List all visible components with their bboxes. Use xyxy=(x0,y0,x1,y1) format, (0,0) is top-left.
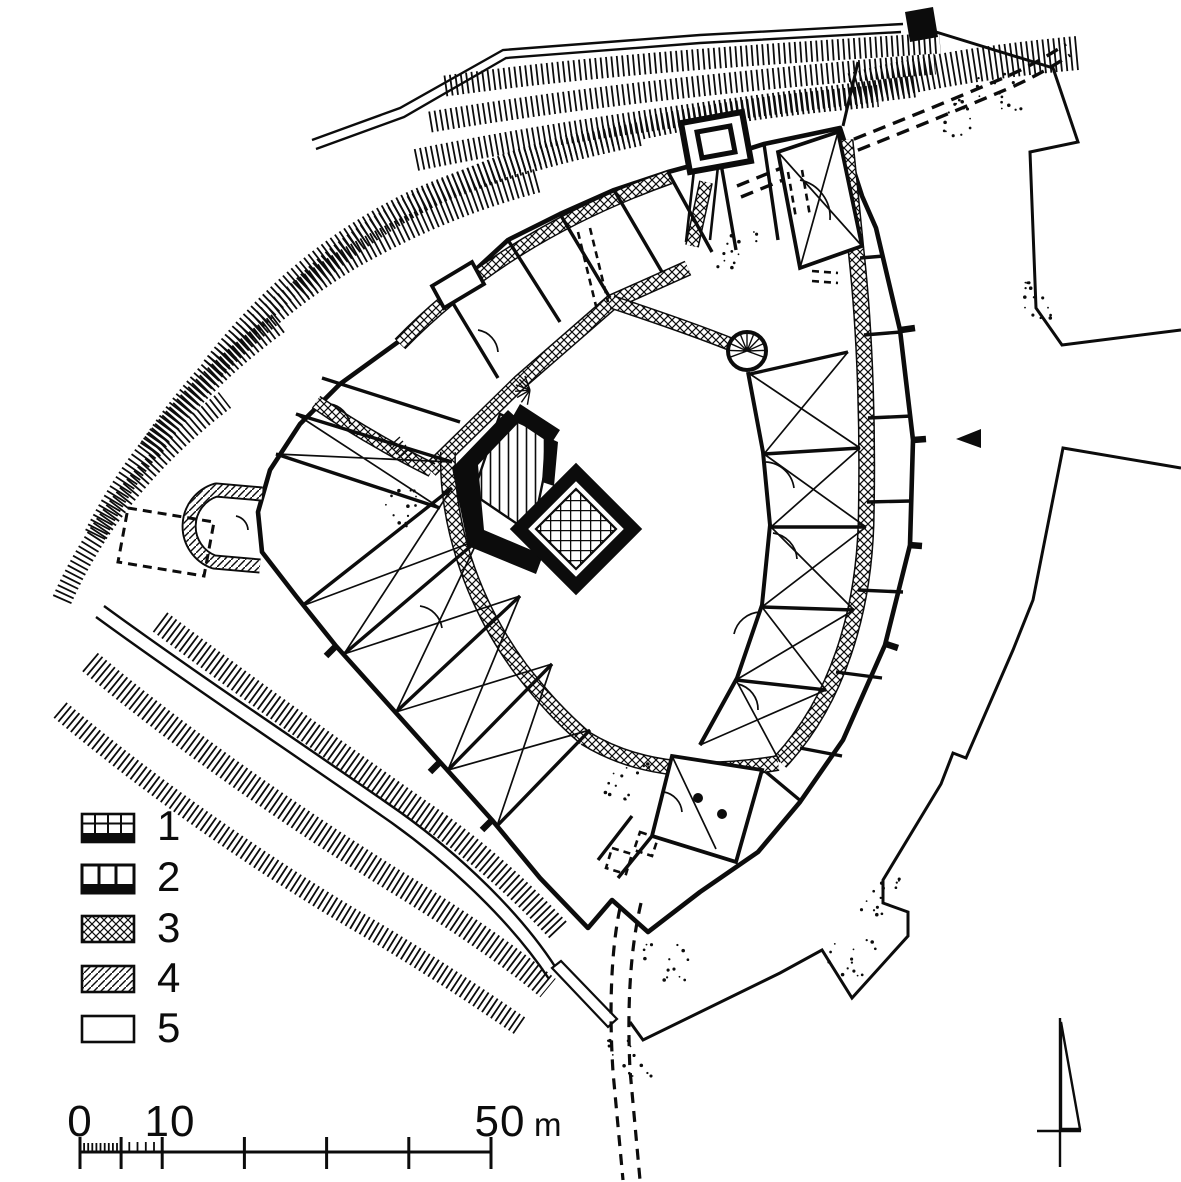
speckle-dot xyxy=(608,793,612,797)
entrance-triangle-icon xyxy=(956,429,981,448)
scale-bar: 0 10 50 m xyxy=(67,1097,561,1169)
roads xyxy=(96,24,1070,1180)
speckle-dot xyxy=(627,794,630,797)
speckle-dot xyxy=(622,1064,626,1068)
scale-label-50: 50 xyxy=(475,1097,526,1146)
speckle-dot xyxy=(628,1072,631,1075)
speckle-dot xyxy=(1001,108,1003,110)
speckle-dot xyxy=(724,260,726,262)
speckle-dot xyxy=(1049,316,1053,320)
speckle-dot xyxy=(979,95,981,97)
courtyard-east-wall xyxy=(700,372,770,745)
speckle-dot xyxy=(870,940,874,944)
speckle-dot xyxy=(857,975,859,977)
speckle-dot xyxy=(615,785,617,787)
speckle-dot xyxy=(722,252,725,255)
speckle-dot xyxy=(943,121,947,125)
legend-swatch-3 xyxy=(82,916,134,942)
legend-label: 3 xyxy=(157,904,180,951)
speckle-dot xyxy=(607,782,610,785)
speckle-dot xyxy=(1029,286,1033,290)
speckle-dot xyxy=(966,107,969,110)
speckle-dot xyxy=(977,77,979,79)
speckle-dot xyxy=(1025,282,1027,284)
speckle-dot xyxy=(1041,296,1044,299)
scale-label-0: 0 xyxy=(67,1097,92,1146)
speckle-dot xyxy=(636,771,639,774)
precinct-wall-east-lower xyxy=(630,448,1181,1040)
speckle-dot xyxy=(737,240,741,244)
road-end-strip xyxy=(552,961,617,1027)
gate-hall xyxy=(652,756,762,862)
dashed-road-south xyxy=(629,903,641,1180)
site-plan-svg: 1 2 3 4 5 0 10 50 m xyxy=(0,0,1181,1182)
speckle-dot xyxy=(647,766,650,769)
speckle-dot xyxy=(948,111,950,113)
speckle-dot xyxy=(397,521,401,525)
speckle-dot xyxy=(730,234,734,238)
speckle-dot xyxy=(753,231,755,233)
speckle-dot xyxy=(392,514,394,516)
speckle-dot xyxy=(733,262,736,265)
horseshoe-tower xyxy=(189,490,262,566)
speckle-dot xyxy=(672,968,675,971)
speckle-dot xyxy=(646,944,648,946)
speckle-dot xyxy=(896,881,898,883)
speckle-dot xyxy=(623,797,626,800)
speckle-dot xyxy=(612,1054,614,1056)
legend: 1 2 3 4 5 xyxy=(82,802,180,1051)
speckle-dot xyxy=(861,974,864,977)
speckle-dot xyxy=(687,958,690,961)
speckle-dot xyxy=(880,897,882,899)
legend-swatch-2 xyxy=(82,865,134,893)
speckle-dot xyxy=(683,979,686,982)
speckle-dot xyxy=(895,886,898,889)
speckle-dot xyxy=(955,103,957,105)
legend-label: 5 xyxy=(157,1004,180,1051)
scale-unit-label: m xyxy=(534,1106,562,1143)
speckle-dot xyxy=(390,495,393,498)
speckle-dot xyxy=(604,791,608,795)
speckle-dot xyxy=(1012,81,1015,84)
legend-label: 4 xyxy=(157,954,180,1001)
speckle-dot xyxy=(1023,295,1027,299)
speckle-dot xyxy=(413,489,416,492)
speckle-dot xyxy=(943,130,946,133)
legend-row: 1 xyxy=(82,802,180,849)
speckle-dot xyxy=(875,913,879,917)
speckle-dot xyxy=(385,504,387,506)
speckle-dot xyxy=(873,909,875,911)
speckle-dot xyxy=(415,496,417,498)
speckle-dot xyxy=(850,958,853,961)
speckle-dot xyxy=(633,1054,636,1057)
speckle-dot xyxy=(608,1039,612,1043)
speckle-dot xyxy=(1039,317,1041,319)
speckle-dot xyxy=(1003,73,1006,76)
speckle-dot xyxy=(662,978,666,982)
speckle-dot xyxy=(679,976,681,978)
speckle-dot xyxy=(960,134,962,136)
speckle-dot xyxy=(608,1044,611,1047)
speckle-dot xyxy=(827,960,831,964)
plan-figure: 1 2 3 4 5 0 10 50 m xyxy=(0,0,1181,1182)
room-free-standing xyxy=(432,262,484,308)
legend-label: 2 xyxy=(157,853,180,900)
legend-row: 2 xyxy=(82,853,180,900)
speckle-dot xyxy=(755,233,758,236)
speckle-dot xyxy=(1031,314,1034,317)
speckle-dot xyxy=(414,504,417,507)
wall-band-crosshatch xyxy=(430,268,688,470)
speckle-dot xyxy=(668,958,670,960)
speckle-dot xyxy=(860,908,863,911)
speckle-dot xyxy=(997,91,1001,95)
speckle-dot xyxy=(881,887,885,891)
speckle-dot xyxy=(406,504,410,508)
speckle-dot xyxy=(716,265,719,268)
speckle-dot xyxy=(969,127,972,130)
speckle-dot xyxy=(872,890,875,893)
speckle-dot xyxy=(646,1072,648,1074)
wall-band-crosshatch xyxy=(612,302,730,344)
speckle-dot xyxy=(847,967,849,969)
speckle-dot xyxy=(1001,96,1004,99)
speckle-dot xyxy=(646,762,650,766)
speckle-dot xyxy=(1024,287,1026,289)
legend-row: 4 xyxy=(82,954,180,1001)
legend-swatch-5 xyxy=(82,1016,134,1042)
speckle-dot xyxy=(676,944,678,946)
speckle-dot xyxy=(880,881,884,885)
speckle-dot xyxy=(960,100,964,104)
precinct-wall-east-upper xyxy=(936,32,1181,345)
legend-row: 5 xyxy=(82,1004,180,1051)
speckle-dot xyxy=(874,947,877,950)
spiral-stair-tower xyxy=(390,332,766,462)
speckle-dot xyxy=(402,525,404,527)
speckle-dot xyxy=(958,99,961,102)
speckle-dot xyxy=(994,82,996,84)
speckle-dot xyxy=(755,240,757,242)
speckle-dot xyxy=(866,900,868,902)
speckle-dot xyxy=(881,912,884,915)
speckle-dot xyxy=(632,1075,634,1077)
speckle-dot xyxy=(404,522,407,525)
speckle-dot xyxy=(730,250,733,253)
speckle-dot xyxy=(1049,314,1052,317)
speckle-dot xyxy=(640,1064,644,1068)
speckle-dot xyxy=(976,85,979,88)
speckle-dot xyxy=(963,107,965,109)
hachure-band xyxy=(160,622,558,930)
speckle-dot xyxy=(620,774,623,777)
speckle-dot xyxy=(738,253,740,255)
speckle-dot xyxy=(649,1074,652,1077)
speckle-dot xyxy=(613,773,615,775)
speckle-dot xyxy=(1014,109,1016,111)
pavilion-tower xyxy=(681,112,751,172)
speckle-dot xyxy=(650,943,653,946)
speckle-dot xyxy=(898,878,901,881)
speckle-dot xyxy=(730,266,734,270)
speckle-dot xyxy=(405,525,408,528)
dashed-road-south xyxy=(611,908,623,1180)
speckle-dot xyxy=(643,948,646,951)
speckle-dot xyxy=(643,765,645,767)
legend-swatch-1 xyxy=(82,814,134,842)
speckle-dot xyxy=(1008,75,1010,77)
speckle-dot xyxy=(643,957,647,961)
speckle-dot xyxy=(1019,107,1022,110)
speckle-dot xyxy=(1007,104,1011,108)
scale-label-10: 10 xyxy=(145,1097,196,1146)
speckle-dot xyxy=(1047,307,1049,309)
speckle-dot xyxy=(851,961,853,963)
speckle-dot xyxy=(410,489,412,491)
speckle-dot xyxy=(1024,307,1026,309)
speckle-dot xyxy=(1033,296,1035,298)
speckle-dot xyxy=(630,1046,632,1048)
wall-fragment-solid xyxy=(905,7,938,42)
speckle-dot xyxy=(681,949,685,953)
north-arrow-icon xyxy=(1037,1018,1081,1167)
speckle-dot xyxy=(829,951,832,954)
speckle-dot xyxy=(667,969,670,972)
speckle-dot xyxy=(1000,101,1003,104)
speckle-dot xyxy=(626,767,628,769)
legend-row: 3 xyxy=(82,904,180,951)
speckle-dot xyxy=(726,243,728,245)
speckle-dot xyxy=(866,939,868,941)
speckle-dot xyxy=(841,973,845,977)
speckle-dot xyxy=(852,970,855,973)
speckle-dot xyxy=(666,976,668,978)
speckle-dot xyxy=(397,489,401,493)
speckle-dot xyxy=(407,515,409,517)
speckle-dot xyxy=(952,134,955,137)
speckle-dot xyxy=(876,906,879,909)
legend-swatch-4 xyxy=(82,966,134,992)
speckle-dot xyxy=(627,1040,630,1043)
legend-label: 1 xyxy=(157,802,180,849)
speckle-dot xyxy=(1026,281,1029,284)
speckle-dot xyxy=(969,118,971,120)
speckle-dot xyxy=(853,949,855,951)
speckle-dot xyxy=(834,943,836,945)
